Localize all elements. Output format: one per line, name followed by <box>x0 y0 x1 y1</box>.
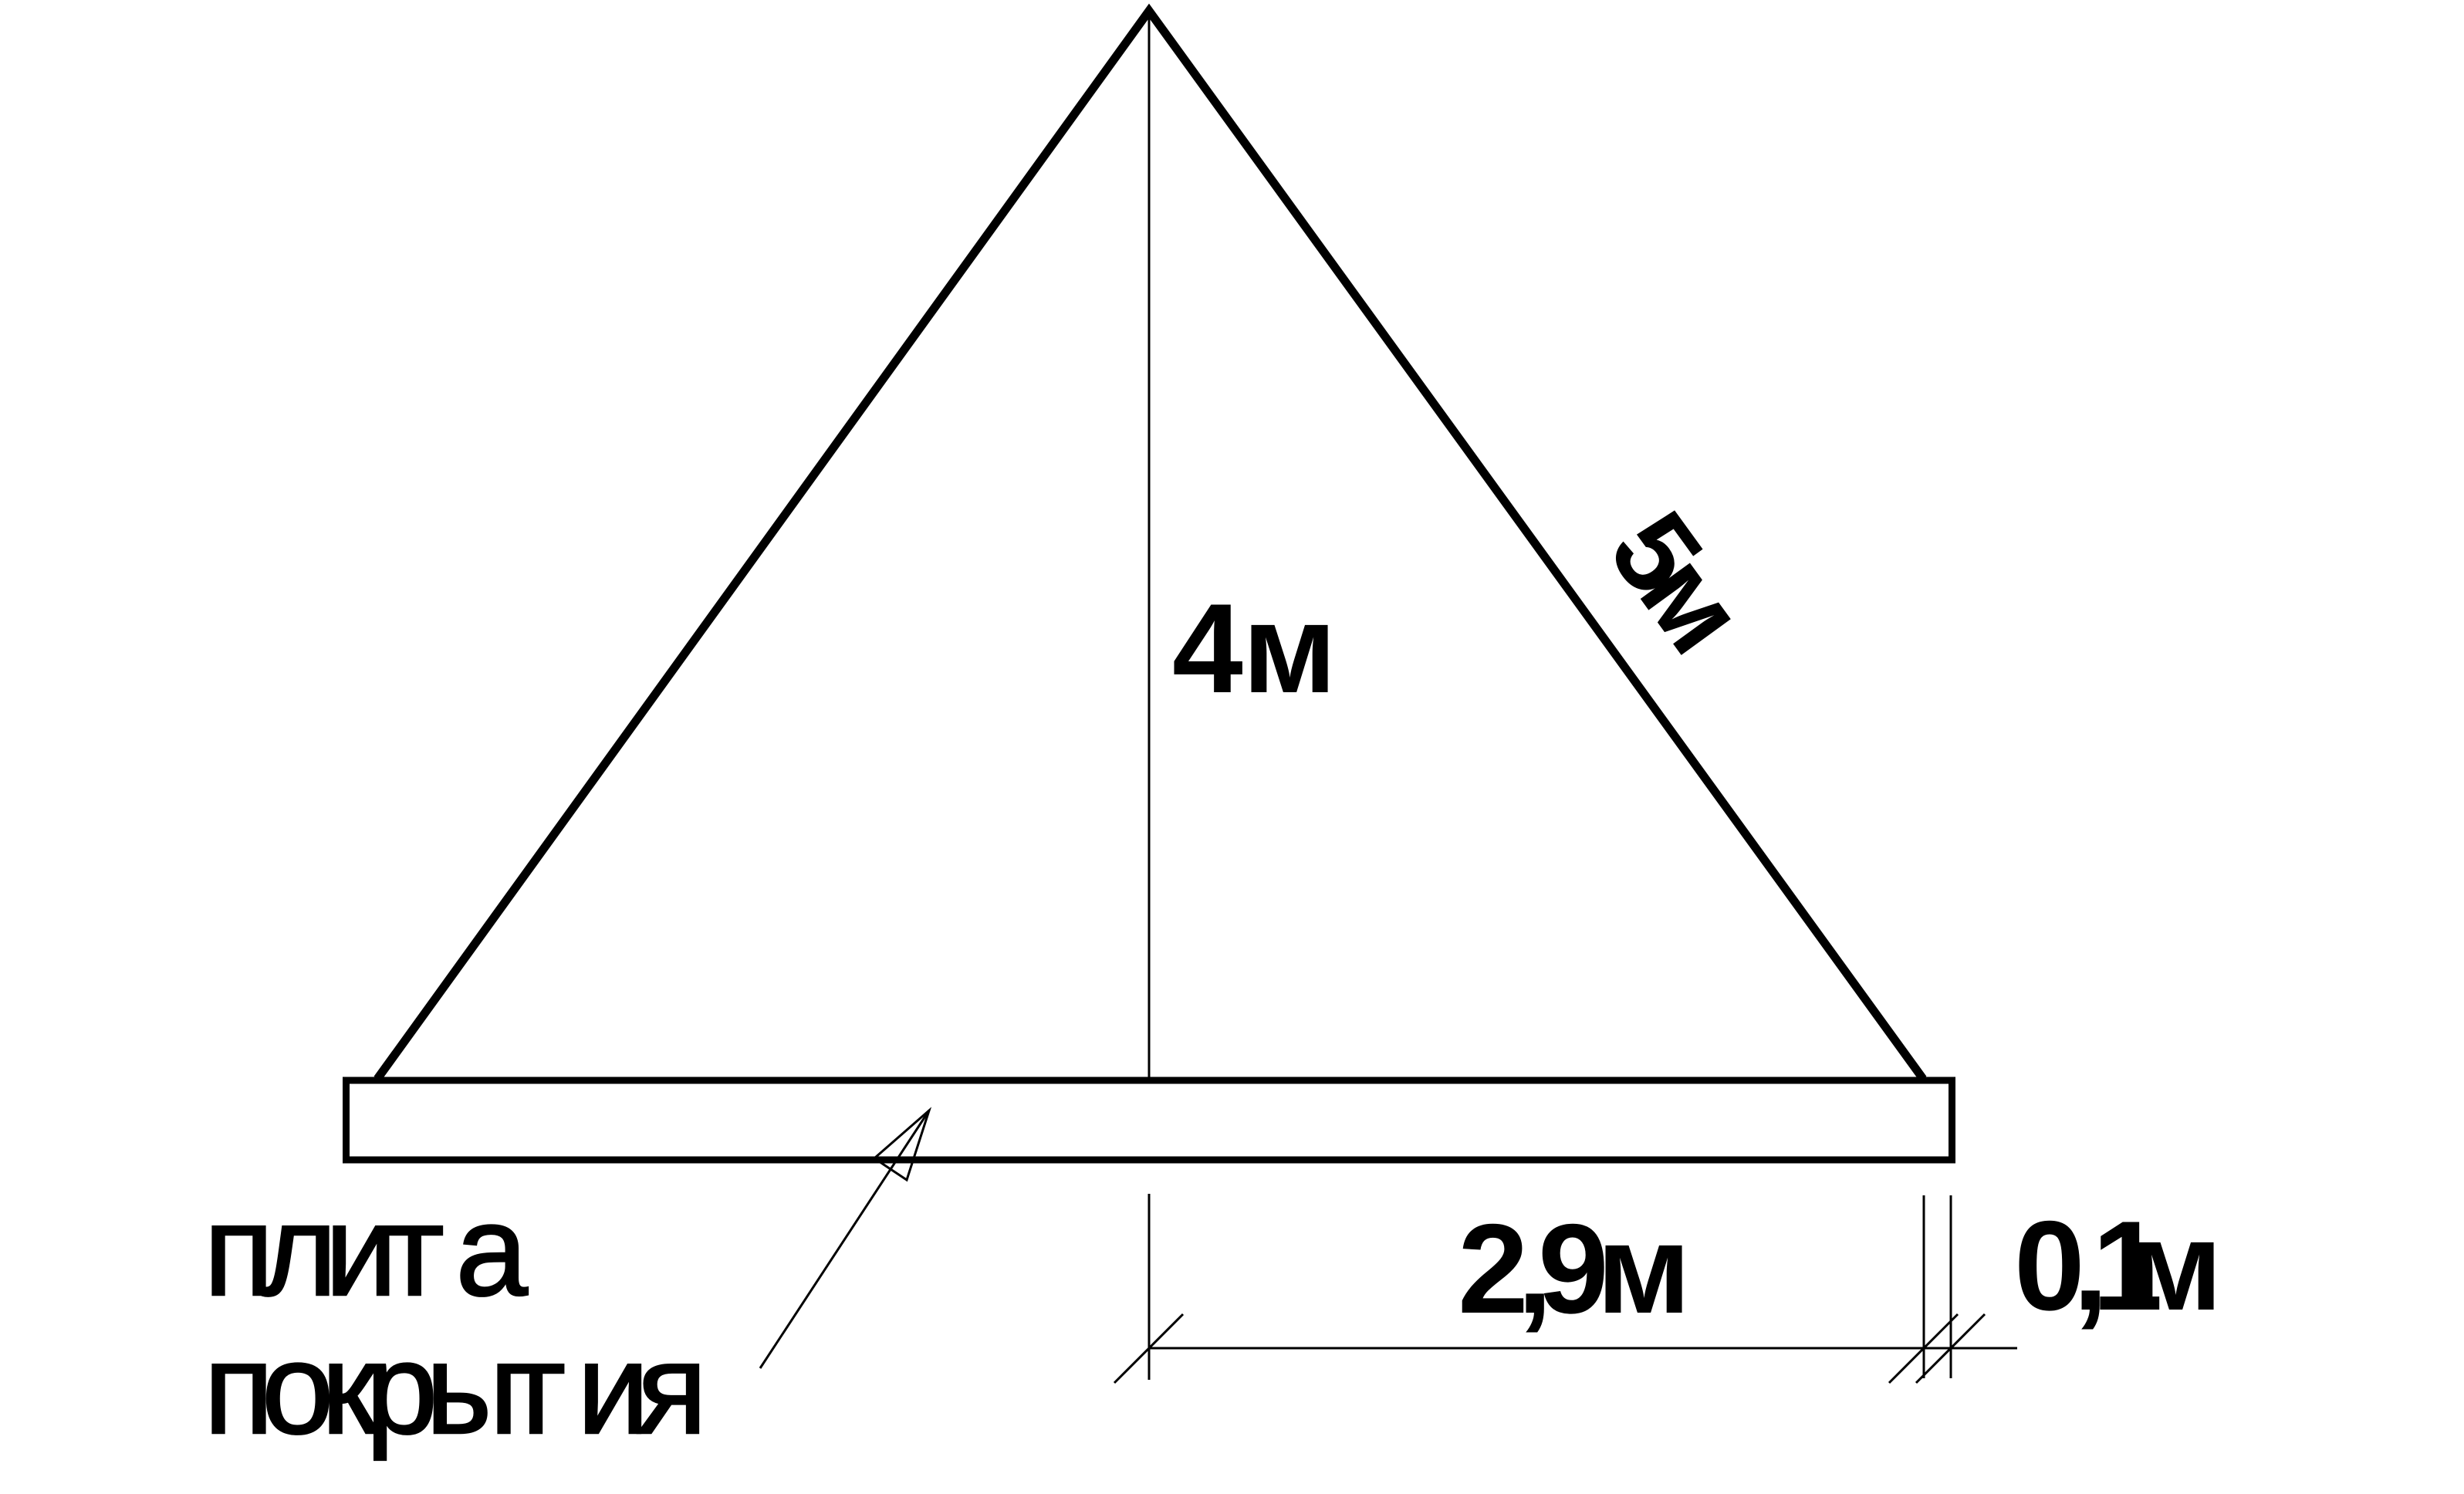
svg-text:0,1м: 0,1м <box>2014 1195 2222 1337</box>
svg-text:плит а: плит а <box>204 1178 528 1323</box>
svg-text:4м: 4м <box>1172 577 1337 719</box>
svg-text:покрыт ия: покрыт ия <box>204 1316 699 1461</box>
svg-text:2,9м: 2,9м <box>1458 1198 1691 1340</box>
svg-text:5м: 5м <box>1585 488 1766 670</box>
